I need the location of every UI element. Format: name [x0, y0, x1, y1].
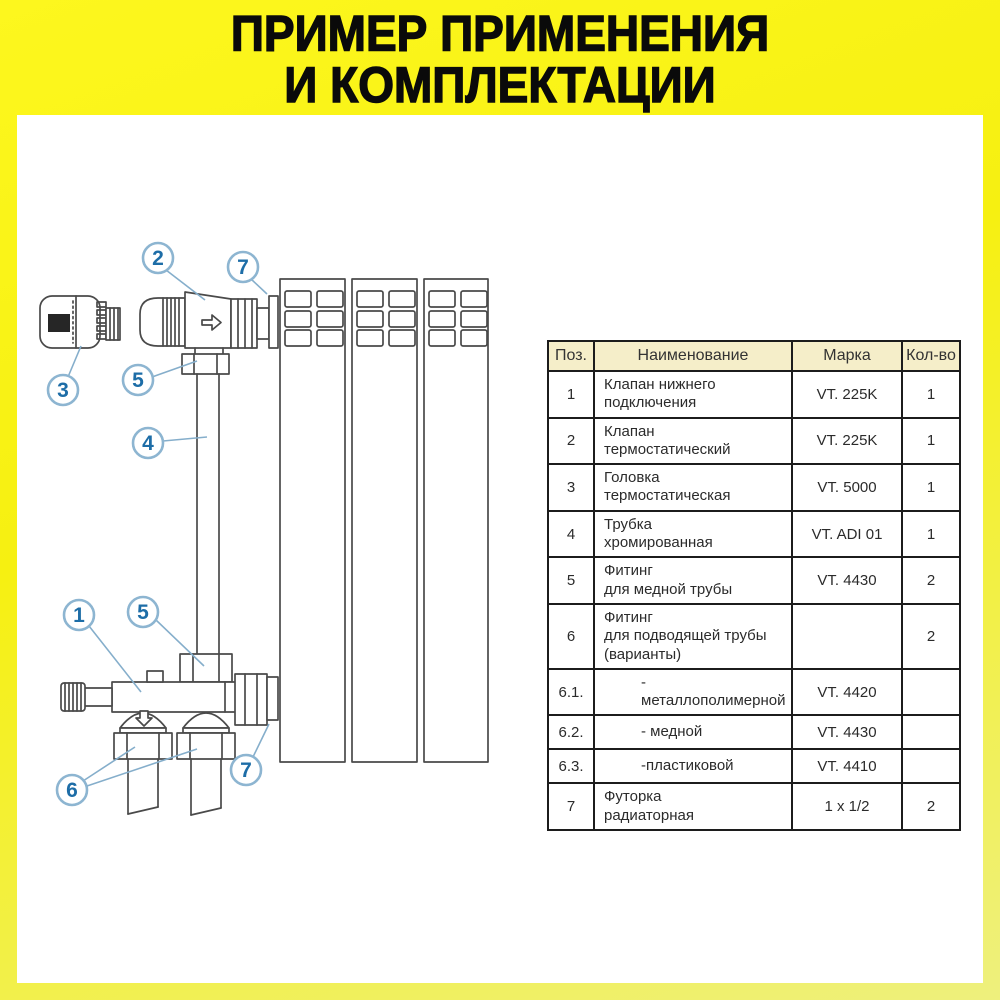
radiator-drawing [280, 279, 488, 762]
cell-qty: 2 [902, 557, 960, 604]
cell-marka: VT. 4420 [792, 669, 902, 716]
cell-qty [902, 749, 960, 783]
cell-qty: 1 [902, 464, 960, 511]
leader-line [163, 437, 207, 441]
parts-table: Поз. Наименование Марка Кол-во 1Клапан н… [547, 340, 959, 831]
cell-marka: VT. 5000 [792, 464, 902, 511]
chrome-tube-drawing [197, 374, 219, 654]
page-title-line-1: ПРИМЕР ПРИМЕНЕНИЯ [231, 7, 769, 59]
svg-text:6: 6 [66, 779, 78, 802]
bottom-valve-drawing [61, 654, 278, 815]
table-row: 5Фитинг для медной трубыVT. 44302 [548, 557, 960, 604]
cell-marka: VT. 4410 [792, 749, 902, 783]
cell-name: Фитинг для медной трубы [594, 557, 792, 604]
cell-pos: 3 [548, 464, 594, 511]
leader-line [251, 279, 267, 294]
svg-text:2: 2 [152, 247, 164, 270]
svg-text:7: 7 [240, 759, 252, 782]
cell-pos: 6 [548, 604, 594, 669]
cell-qty: 1 [902, 371, 960, 418]
fitting-nut-bottom [180, 654, 232, 682]
thermostatic-head-drawing [40, 296, 120, 348]
callout-7: 7 [228, 252, 258, 282]
cell-name: - медной [594, 715, 792, 749]
table-row: 6.3.-пластиковойVT. 4410 [548, 749, 960, 783]
cell-name: Клапан нижнего подключения [594, 371, 792, 418]
table-row: 6.2.- меднойVT. 4430 [548, 715, 960, 749]
cell-qty: 1 [902, 418, 960, 465]
cell-marka: VT. 225K [792, 418, 902, 465]
cell-pos: 1 [548, 371, 594, 418]
installation-diagram: 273541567 [17, 230, 517, 830]
cell-pos: 6.3. [548, 749, 594, 783]
page-title-line-2: И КОМПЛЕКТАЦИИ [284, 59, 715, 111]
cell-qty: 2 [902, 783, 960, 830]
col-header-name: Наименование [594, 341, 792, 371]
svg-text:3: 3 [57, 379, 69, 402]
table-row: 6.1.- металлополимернойVT. 4420 [548, 669, 960, 716]
radiator-top-grid [285, 291, 487, 346]
cell-pos: 6.1. [548, 669, 594, 716]
table-row: 6Фитинг для подводящей трубы (варианты)2 [548, 604, 960, 669]
leader-line [68, 346, 81, 377]
page-title: ПРИМЕР ПРИМЕНЕНИЯ И КОМПЛЕКТАЦИИ [0, 0, 1000, 118]
cell-pos: 6.2. [548, 715, 594, 749]
table-row: 4Трубка хромированнаяVT. ADI 011 [548, 511, 960, 558]
cell-pos: 2 [548, 418, 594, 465]
col-header-marka: Марка [792, 341, 902, 371]
cell-pos: 5 [548, 557, 594, 604]
callout-4: 4 [133, 428, 163, 458]
cell-marka: 1 x 1/2 [792, 783, 902, 830]
cell-marka: VT. 4430 [792, 557, 902, 604]
callout-5: 5 [123, 365, 153, 395]
col-header-qty: Кол-во [902, 341, 960, 371]
table-row: 3Головка термостатическаяVT. 50001 [548, 464, 960, 511]
cell-name: Головка термостатическая [594, 464, 792, 511]
svg-text:5: 5 [137, 601, 149, 624]
cell-qty [902, 669, 960, 716]
cell-name: Клапан термостатический [594, 418, 792, 465]
callout-1: 1 [64, 600, 94, 630]
callout-5: 5 [128, 597, 158, 627]
cell-name: Футорка радиаторная [594, 783, 792, 830]
thermostatic-valve-drawing [140, 292, 278, 374]
callout-2: 2 [143, 243, 173, 273]
leader-line [253, 724, 269, 757]
cell-pos: 7 [548, 783, 594, 830]
svg-text:5: 5 [132, 369, 144, 392]
cell-marka [792, 604, 902, 669]
cell-name: Трубка хромированная [594, 511, 792, 558]
parts-table-body: 1Клапан нижнего подключенияVT. 225K12Кла… [548, 371, 960, 830]
svg-text:4: 4 [142, 432, 154, 455]
cell-pos: 4 [548, 511, 594, 558]
col-header-pos: Поз. [548, 341, 594, 371]
cell-qty [902, 715, 960, 749]
cell-marka: VT. 4430 [792, 715, 902, 749]
table-row: 7Футорка радиаторная1 x 1/22 [548, 783, 960, 830]
cell-qty: 2 [902, 604, 960, 669]
callout-7: 7 [231, 755, 261, 785]
callout-3: 3 [48, 375, 78, 405]
table-header-row: Поз. Наименование Марка Кол-во [548, 341, 960, 371]
cell-qty: 1 [902, 511, 960, 558]
callout-6: 6 [57, 775, 87, 805]
content-panel: 273541567 Поз. Наименование Марка Кол-во… [17, 115, 983, 983]
cell-marka: VT. 225K [792, 371, 902, 418]
table-row: 2Клапан термостатическийVT. 225K1 [548, 418, 960, 465]
svg-text:1: 1 [73, 604, 85, 627]
svg-text:7: 7 [237, 256, 249, 279]
cell-marka: VT. ADI 01 [792, 511, 902, 558]
cell-name: -пластиковой [594, 749, 792, 783]
cell-name: Фитинг для подводящей трубы (варианты) [594, 604, 792, 669]
table-row: 1Клапан нижнего подключенияVT. 225K1 [548, 371, 960, 418]
cell-name: - металлополимерной [594, 669, 792, 716]
